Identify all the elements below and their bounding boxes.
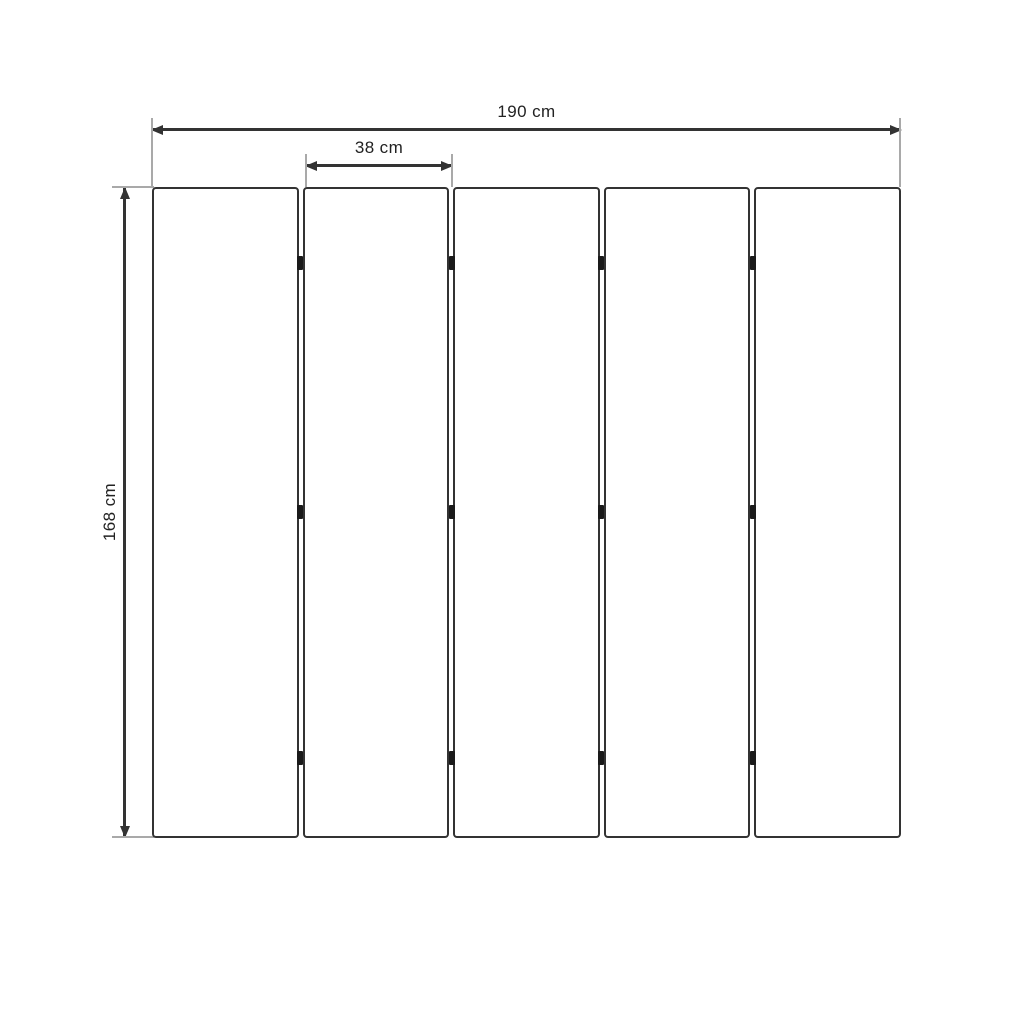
extension-line [151, 118, 153, 187]
panel [453, 187, 600, 838]
extension-line [451, 154, 453, 187]
panel [303, 187, 450, 838]
height-dimension-label: 168 cm [100, 483, 120, 541]
panel [604, 187, 751, 838]
arrowhead-up-icon [120, 187, 130, 199]
extension-line [899, 118, 901, 187]
extension-line [112, 186, 154, 188]
extension-line [305, 154, 307, 187]
panels-row [152, 187, 901, 838]
total-width-dimension-line [152, 128, 901, 131]
dimension-diagram: 190 cm 38 cm 168 cm [0, 0, 1024, 1024]
total-width-dimension-label: 190 cm [152, 102, 901, 122]
panel-width-dimension-line [306, 164, 452, 167]
panel [152, 187, 299, 838]
height-dimension-line [123, 188, 126, 837]
extension-line [112, 836, 154, 838]
panel-width-dimension-label: 38 cm [306, 138, 452, 158]
panel [754, 187, 901, 838]
